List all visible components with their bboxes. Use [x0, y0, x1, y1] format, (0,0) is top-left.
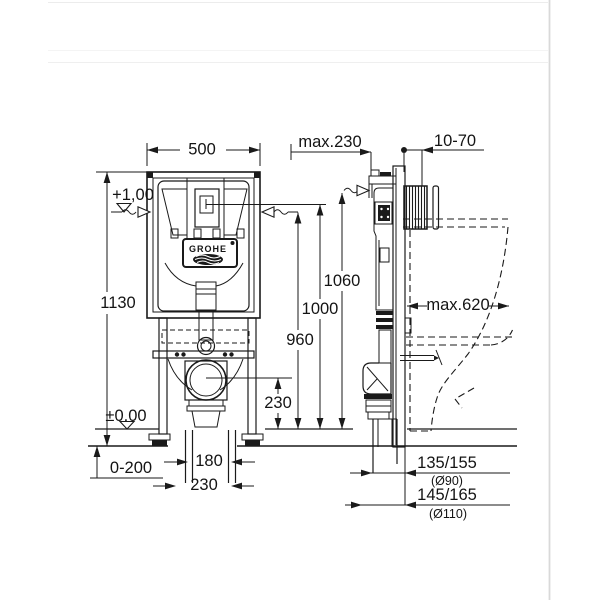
dim-0-200: 0-200	[90, 446, 163, 478]
inspection-window	[195, 189, 219, 227]
flush-plate	[433, 186, 439, 229]
dim-180: 180	[164, 452, 255, 470]
dim-145-165-label: 145/165	[417, 486, 477, 504]
front-view: GROHE	[96, 172, 263, 483]
level-plus-100-label: +1,00	[112, 186, 154, 204]
dim-135-155-label: 135/155	[417, 454, 477, 472]
dim-0-200-label: 0-200	[110, 459, 152, 477]
dim-180-label: 180	[195, 452, 223, 470]
dim-1130: 1130	[93, 172, 144, 446]
installation-drawing: GROHE	[0, 0, 600, 600]
wall-line-arrow-icon	[138, 207, 150, 217]
actuator-sleeve	[404, 186, 427, 229]
dim-10-70-label: 10-70	[434, 132, 476, 150]
dim-145-165: 145/165 (Ø110)	[345, 486, 510, 521]
dim-max-620: max.620	[407, 296, 509, 314]
dim-1060-label: 1060	[324, 272, 361, 290]
toilet-bowl-outline	[403, 219, 513, 431]
registered-mark-icon	[231, 241, 235, 245]
frame-upright	[393, 166, 405, 447]
dim-max-230: max.230	[291, 133, 371, 171]
wall-line-arrow-icon	[262, 207, 274, 217]
grohe-logo: GROHE	[183, 239, 237, 267]
wall-line-arrow-icon	[357, 185, 369, 195]
level-zero: ±0,00	[105, 407, 146, 429]
dim-o110-label: (Ø110)	[429, 507, 467, 521]
dim-230-height: 230	[206, 378, 296, 429]
grohe-logo-text: GROHE	[189, 244, 227, 254]
dim-max-620-label: max.620	[426, 296, 489, 314]
level-marker-icon	[120, 422, 134, 430]
dim-135-155: 135/155 (Ø90)	[350, 454, 510, 488]
dim-960-label: 960	[286, 331, 314, 349]
wall-line-arrow-right	[262, 207, 298, 217]
dim-1130-label: 1130	[100, 294, 135, 312]
dim-10-70: 10-70	[401, 132, 484, 186]
dim-500: 500	[147, 139, 260, 166]
mounting-clips	[171, 229, 244, 238]
actuator-rod-box	[375, 202, 392, 224]
dim-230-height-label: 230	[264, 394, 292, 412]
drain-outlet	[185, 360, 227, 427]
dim-max-230-label: max.230	[298, 133, 361, 151]
corner-brackets	[147, 172, 260, 178]
dim-230-bottom: 230	[153, 476, 254, 494]
dim-1000-label: 1000	[302, 300, 339, 318]
level-plus-100: +1,00	[111, 186, 154, 217]
dim-500-label: 500	[188, 141, 216, 159]
mounting-stud	[400, 350, 442, 365]
frame-feet	[149, 434, 263, 446]
technical-drawing-page: GROHE	[0, 0, 600, 600]
dim-230-bottom-label: 230	[190, 476, 218, 494]
